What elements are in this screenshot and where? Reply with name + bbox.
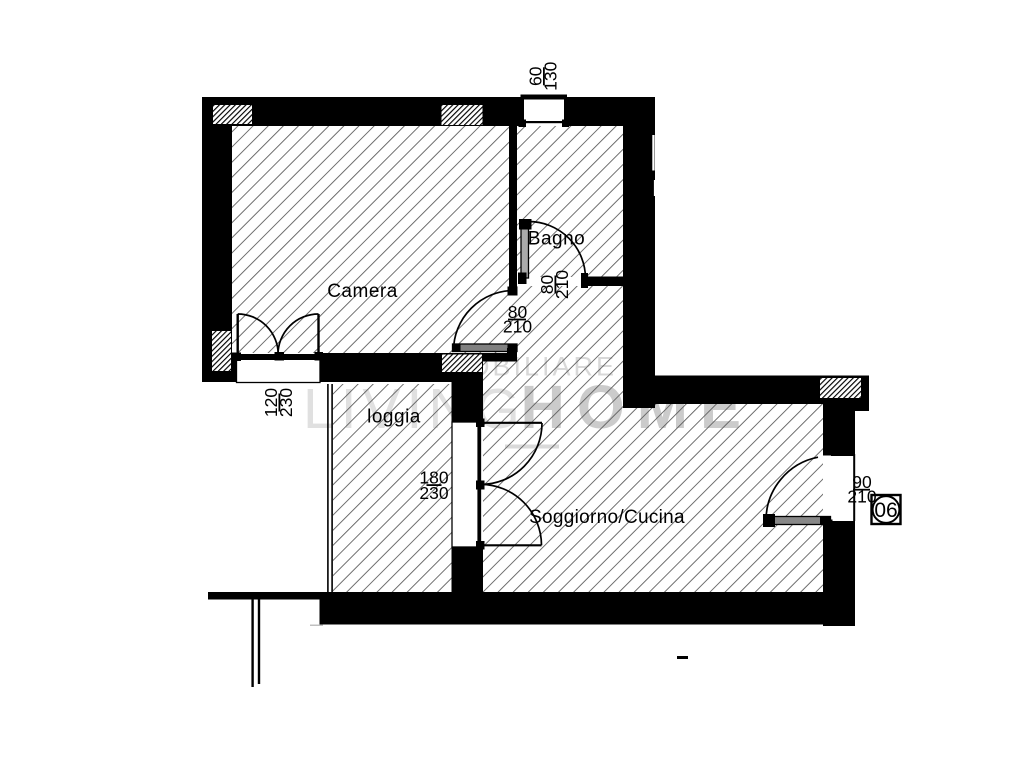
svg-text:210: 210 (503, 317, 532, 337)
svg-text:Soggiorno/Cucina: Soggiorno/Cucina (529, 507, 685, 528)
svg-text:loggia: loggia (367, 407, 421, 428)
svg-text:230: 230 (276, 388, 296, 417)
svg-text:Bagno: Bagno (528, 229, 585, 250)
svg-text:130: 130 (541, 61, 561, 90)
svg-text:210: 210 (552, 270, 572, 299)
svg-text:210: 210 (847, 487, 876, 507)
svg-text:230: 230 (419, 483, 448, 503)
svg-text:06: 06 (874, 499, 897, 522)
svg-text:Camera: Camera (327, 281, 398, 302)
